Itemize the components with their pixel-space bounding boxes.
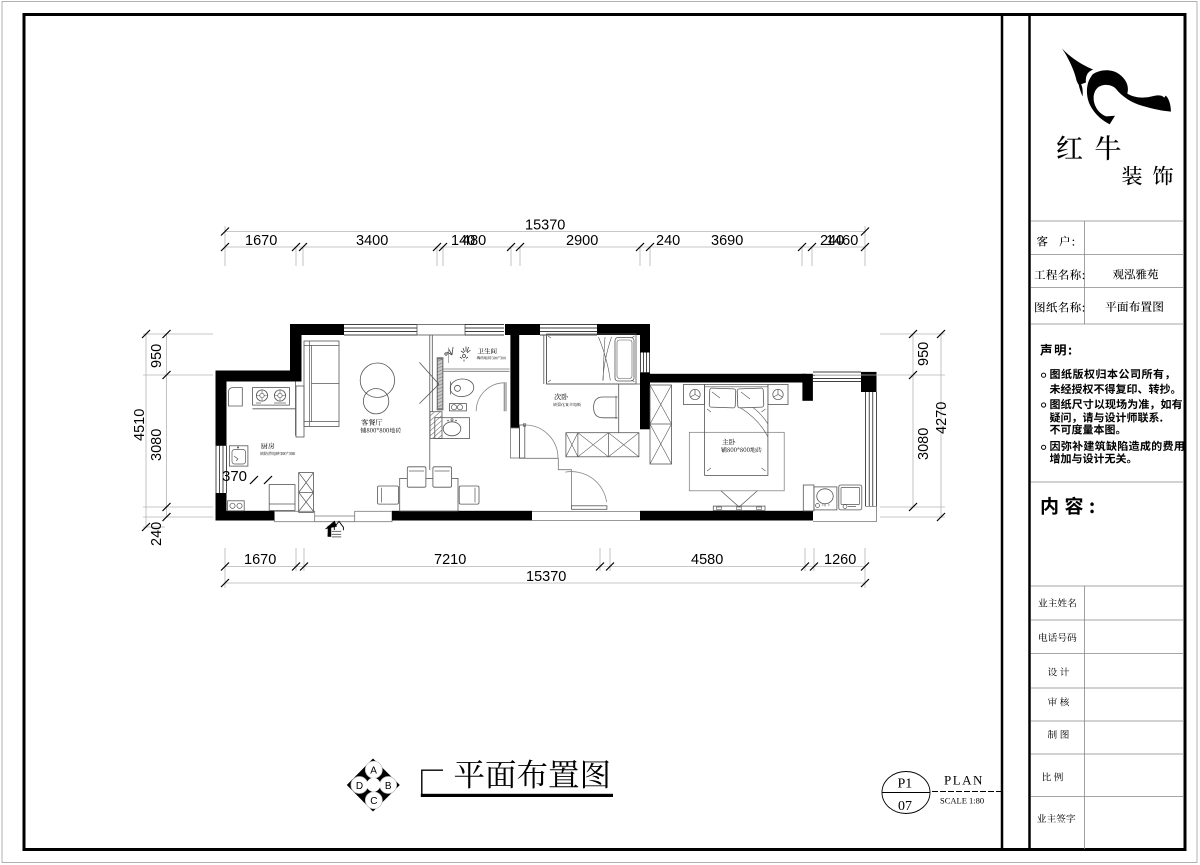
svg-text:480: 480: [462, 233, 486, 249]
svg-text:15370: 15370: [525, 218, 565, 234]
svg-text:3690: 3690: [711, 233, 743, 249]
svg-text:15370: 15370: [526, 569, 566, 585]
svg-text:C: C: [370, 796, 377, 807]
svg-text:1670: 1670: [245, 233, 277, 249]
svg-text:950: 950: [916, 342, 932, 366]
svg-text:1260: 1260: [824, 552, 856, 568]
svg-text:370: 370: [222, 468, 247, 485]
svg-text:3400: 3400: [356, 233, 388, 249]
svg-text:4510: 4510: [132, 409, 148, 441]
svg-text:P1: P1: [898, 777, 913, 792]
svg-text:A: A: [370, 766, 377, 777]
svg-text:D: D: [356, 781, 363, 792]
svg-text:4580: 4580: [691, 552, 723, 568]
svg-text:7210: 7210: [434, 552, 466, 568]
svg-text:3080: 3080: [149, 429, 165, 461]
svg-text:07: 07: [898, 799, 912, 814]
svg-text:SCALE 1:80: SCALE 1:80: [940, 796, 984, 806]
svg-text:3080: 3080: [916, 428, 932, 460]
svg-text:1670: 1670: [244, 552, 276, 568]
svg-text:4270: 4270: [934, 402, 950, 434]
svg-text:B: B: [385, 781, 392, 792]
svg-text:240: 240: [149, 522, 165, 546]
svg-text:PLAN: PLAN: [944, 773, 984, 788]
svg-text:950: 950: [149, 344, 165, 368]
svg-text:240: 240: [656, 233, 680, 249]
svg-text:2900: 2900: [566, 233, 598, 249]
svg-text:1460: 1460: [826, 233, 858, 249]
